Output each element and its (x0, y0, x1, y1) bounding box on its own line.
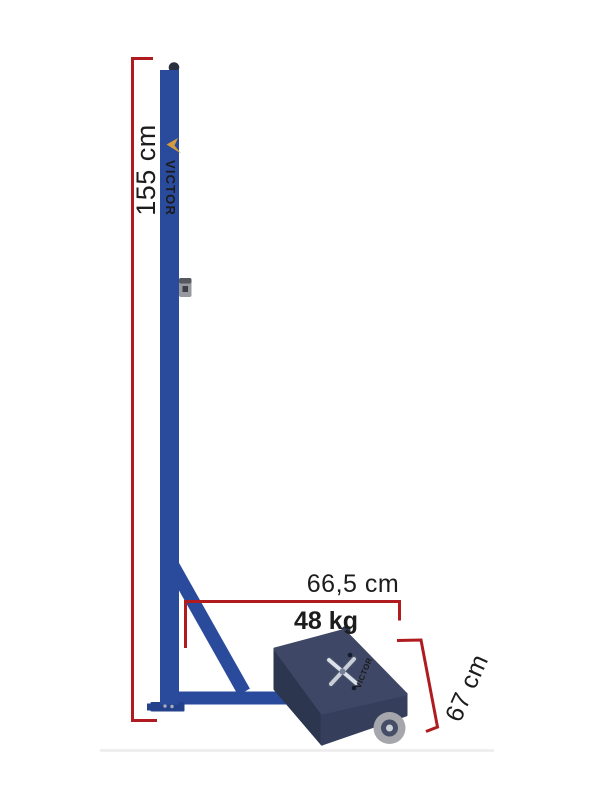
diagonal-brace (173, 566, 244, 692)
wheel (374, 712, 406, 744)
crank-center (340, 669, 346, 675)
depth-dimension-line (397, 640, 438, 732)
depth-dimension-label: 67 cm (440, 650, 494, 726)
product-dimension-diagram: VICTOR (0, 0, 600, 800)
depth-dimension: 67 cm (397, 640, 494, 732)
weight-label: 48 kg (294, 607, 358, 635)
height-dimension-label: 155 cm (131, 124, 161, 216)
wheel-cap (386, 725, 393, 732)
foot-bolt (170, 705, 173, 708)
diagram-svg: VICTOR (0, 0, 600, 800)
foot-bolt (163, 704, 166, 707)
bolt-hole (348, 653, 353, 658)
net-hook (179, 278, 192, 297)
post-brand-label: VICTOR (163, 160, 178, 216)
width-dimension-label: 66,5 cm (307, 570, 399, 598)
net-hook-cap (179, 278, 192, 284)
net-hook-slot (183, 286, 189, 292)
height-dimension: 155 cm (131, 59, 161, 721)
